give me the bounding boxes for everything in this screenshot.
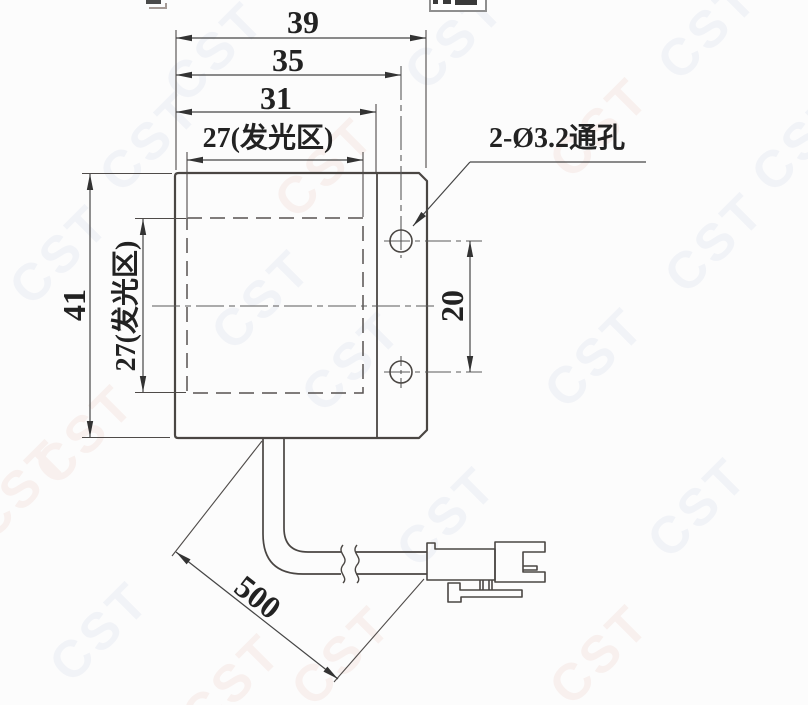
hole-leader-line [413,162,646,226]
hole-callout-label: 2-Ø3.2通孔 [489,125,625,153]
connector-latch [448,583,522,602]
dim-total-height: 41 [58,289,90,321]
dim-emitting-width: 27(发光区) [203,125,334,153]
cable [263,438,427,583]
cable-break-symbol [341,545,345,583]
dim-hole-spacing: 20 [436,290,468,322]
top-edge-fragment-mark [455,0,477,5]
connector-pin [523,566,537,570]
top-edge-fragment-left-corner [149,3,167,9]
top-edge-fragment-mark [443,0,451,4]
top-edge-fragment-mark [433,0,438,4]
dim-emitting-height: 27(发光区) [113,241,141,372]
dim-width-to-hole: 35 [272,44,304,76]
dim-total-width: 39 [287,6,319,38]
centerlines [152,66,482,388]
connector [427,542,545,602]
drawing-canvas: CSTCSTCSTCSTCSTCSTCSTCSTCSTCSTCSTCSTCSTC… [0,0,808,705]
dim-body-width: 31 [260,82,292,114]
